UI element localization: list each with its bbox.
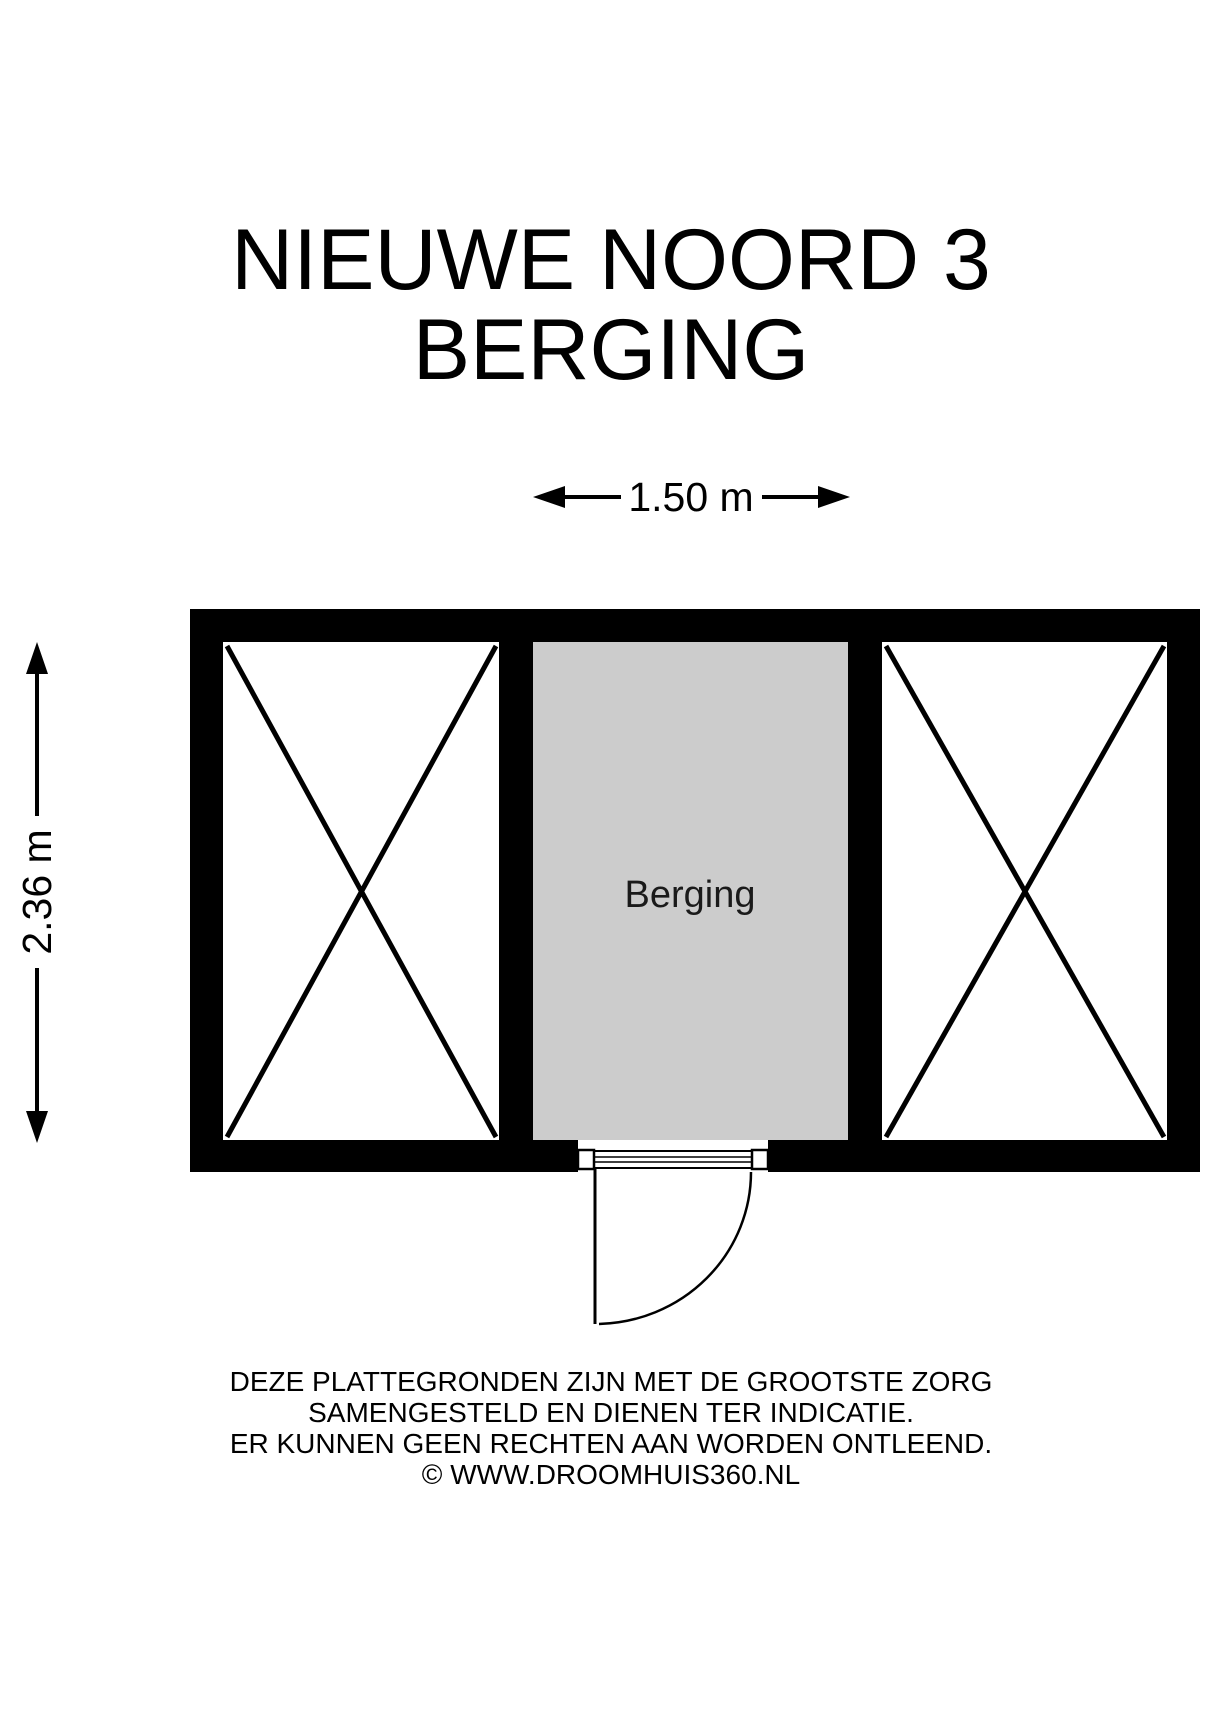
door [578,1140,768,1324]
arrow-right-icon [818,486,850,508]
disclaimer-line4: © WWW.DROOMHUIS360.NL [0,1459,1222,1490]
arrow-up-icon [26,642,48,674]
width-dimension-label: 1.50 m [628,474,753,520]
height-dimension: 2.36 m [14,642,60,1143]
room-label: Berging [625,874,756,916]
disclaimer: DEZE PLATTEGRONDEN ZIJN MET DE GROOTSTE … [0,1366,1222,1490]
disclaimer-line1: DEZE PLATTEGRONDEN ZIJN MET DE GROOTSTE … [0,1366,1222,1397]
disclaimer-line2: SAMENGESTELD EN DIENEN TER INDICATIE. [0,1397,1222,1428]
door-jamb-right [752,1150,768,1169]
door-swing-arc [599,1172,751,1324]
floorplan: Berging [190,609,1200,1324]
arrow-left-icon [533,486,565,508]
disclaimer-line3: ER KUNNEN GEEN RECHTEN AAN WORDEN ONTLEE… [0,1428,1222,1459]
floorplan-page: NIEUWE NOORD 3 BERGING 1.50 m 2.36 m [0,0,1222,1728]
door-threshold [594,1151,752,1168]
width-dimension: 1.50 m [533,474,850,520]
height-dimension-label: 2.36 m [14,829,60,954]
door-jamb-left [578,1150,594,1169]
arrow-down-icon [26,1111,48,1143]
